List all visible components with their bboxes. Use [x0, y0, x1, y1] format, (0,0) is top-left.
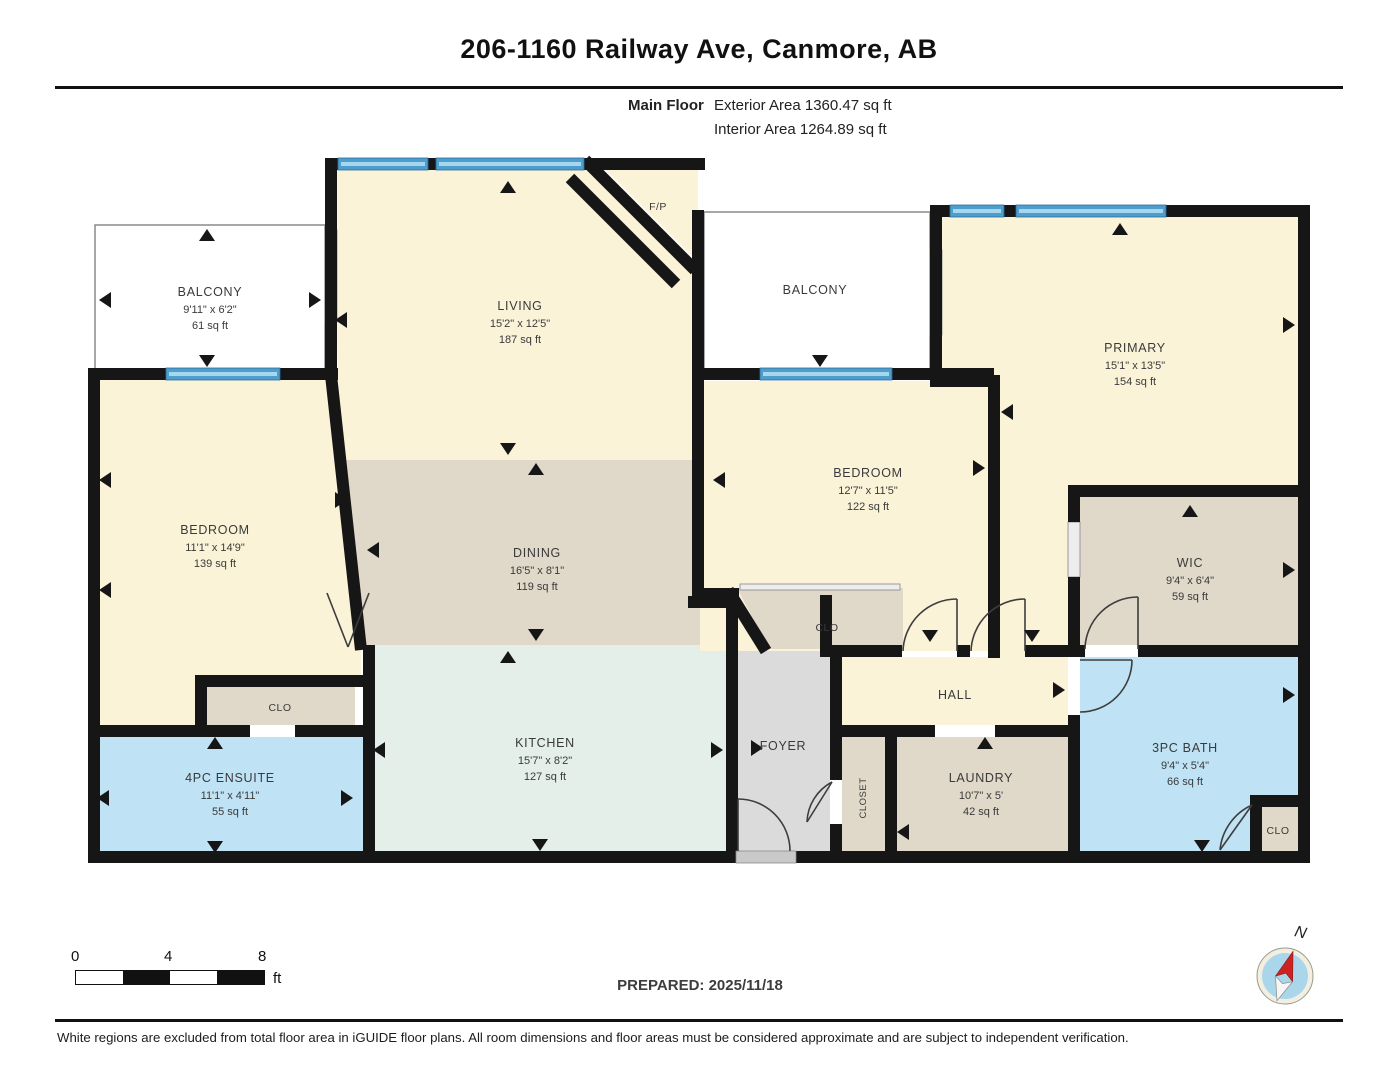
label-wic: WIC: [1177, 556, 1203, 570]
disclaimer-text: White regions are excluded from total fl…: [57, 1030, 1129, 1045]
room-wic: [1080, 497, 1298, 645]
label-closet: CLOSET: [858, 777, 869, 818]
label-living: LIVING: [497, 299, 542, 313]
svg-text:9'11" x 6'2": 9'11" x 6'2": [183, 304, 236, 316]
exterior-area: Exterior Area 1360.47 sq ft: [714, 97, 892, 114]
room-balcony-left: [95, 225, 325, 373]
label-laundry: LAUNDRY: [949, 771, 1013, 785]
label-primary: PRIMARY: [1104, 341, 1166, 355]
scale-bar-unit: ft: [273, 970, 281, 987]
label-clo-bath: CLO: [1266, 825, 1289, 837]
label-kitchen: KITCHEN: [515, 736, 575, 750]
label-foyer: FOYER: [760, 739, 807, 753]
svg-text:119 sq ft: 119 sq ft: [516, 581, 557, 593]
label-balcony-right: BALCONY: [783, 283, 848, 297]
footer-divider: [55, 1019, 1343, 1022]
label-clo-left: CLO: [268, 702, 291, 714]
label-bedroom-right: BEDROOM: [833, 466, 903, 480]
label-dining: DINING: [513, 546, 561, 560]
svg-text:154 sq ft: 154 sq ft: [1114, 376, 1156, 388]
window-wic-left: [1068, 522, 1080, 577]
window-clo-top: [740, 584, 900, 590]
svg-text:12'7" x 11'5": 12'7" x 11'5": [838, 485, 898, 497]
label-fireplace: F/P: [649, 201, 667, 213]
svg-text:11'1" x 14'9": 11'1" x 14'9": [185, 542, 245, 554]
svg-text:15'7" x 8'2": 15'7" x 8'2": [518, 755, 572, 767]
svg-text:127 sq ft: 127 sq ft: [524, 771, 566, 783]
entry-door-slab: [736, 851, 796, 863]
svg-text:11'1" x 4'11": 11'1" x 4'11": [201, 790, 260, 802]
scale-bar: 0 4 8 ft: [75, 948, 305, 993]
svg-text:9'4" x 6'4": 9'4" x 6'4": [1166, 575, 1214, 587]
svg-text:42 sq ft: 42 sq ft: [963, 806, 999, 818]
svg-text:122 sq ft: 122 sq ft: [847, 501, 889, 513]
svg-text:61 sq ft: 61 sq ft: [192, 320, 228, 332]
label-ensuite: 4PC ENSUITE: [185, 771, 275, 785]
scale-bar-track: [75, 970, 265, 985]
prepared-date: PREPARED: 2025/11/18: [560, 977, 840, 994]
svg-text:66 sq ft: 66 sq ft: [1167, 776, 1203, 788]
svg-text:9'4" x 5'4": 9'4" x 5'4": [1161, 760, 1209, 772]
label-bath: 3PC BATH: [1152, 741, 1218, 755]
svg-text:187 sq ft: 187 sq ft: [499, 334, 541, 346]
header-divider: [55, 86, 1343, 89]
svg-text:15'1" x 13'5": 15'1" x 13'5": [1105, 360, 1165, 372]
scale-tick-0: 0: [71, 948, 79, 965]
scale-tick-4: 4: [164, 948, 172, 965]
page-title: 206-1160 Railway Ave, Canmore, AB: [0, 34, 1398, 65]
compass-icon: N: [1245, 920, 1330, 1016]
compass-north-label: N: [1293, 923, 1309, 942]
label-hall: HALL: [938, 688, 972, 702]
floor-label: Main Floor: [628, 97, 704, 114]
svg-text:15'2" x 12'5": 15'2" x 12'5": [490, 318, 550, 330]
room-kitchen: [369, 645, 726, 855]
label-bedroom-left: BEDROOM: [180, 523, 250, 537]
svg-text:10'7" x 5': 10'7" x 5': [959, 790, 1003, 802]
label-balcony-left: BALCONY: [178, 285, 243, 299]
floor-plan: BALCONY 9'11" x 6'2" 61 sq ft LIVING 15'…: [80, 150, 1320, 880]
svg-text:16'5" x 8'1": 16'5" x 8'1": [510, 565, 564, 577]
label-clo-bedroom-right: CLO: [815, 622, 838, 634]
svg-text:55 sq ft: 55 sq ft: [212, 806, 248, 818]
scale-tick-8: 8: [258, 948, 266, 965]
interior-area: Interior Area 1264.89 sq ft: [714, 121, 887, 138]
svg-text:59 sq ft: 59 sq ft: [1172, 591, 1208, 603]
svg-text:139 sq ft: 139 sq ft: [194, 558, 236, 570]
